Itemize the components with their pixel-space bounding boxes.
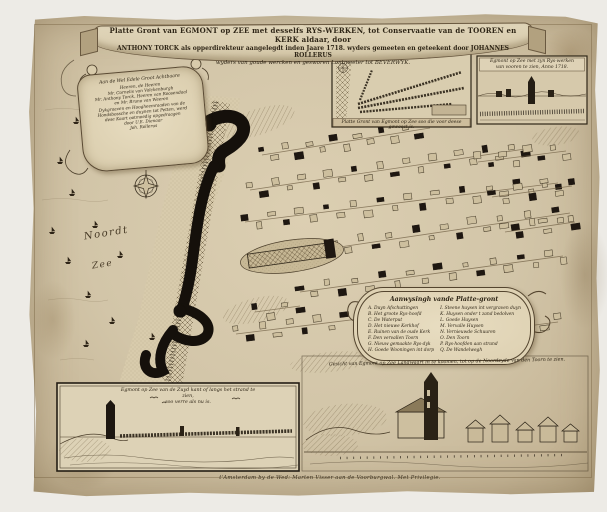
house-block xyxy=(568,215,574,222)
house-block xyxy=(499,223,509,229)
house-block xyxy=(323,169,333,177)
house-block xyxy=(517,254,524,259)
house-block xyxy=(538,218,547,223)
house-block xyxy=(337,212,346,218)
legend-cartouche: Aanwysingh vande Platte-gront A. Duyn Af… xyxy=(353,287,535,365)
house-block xyxy=(568,178,575,185)
house-block xyxy=(297,174,306,180)
ship-icon xyxy=(69,190,75,197)
dedication-cartouche: Aan de Wel Edele Groot Achtbaare Heeren,… xyxy=(76,65,210,174)
house-block xyxy=(270,154,279,160)
house-block xyxy=(516,231,524,238)
house-block xyxy=(529,218,535,226)
house-block xyxy=(281,302,287,307)
house-block xyxy=(390,172,399,177)
ribbon-end-right xyxy=(528,26,546,54)
house-block xyxy=(412,225,420,233)
ship-icon xyxy=(83,341,89,348)
house-block xyxy=(390,136,399,144)
house-block xyxy=(294,152,304,160)
house-block xyxy=(406,270,414,275)
house-block xyxy=(372,244,380,249)
house-block xyxy=(258,147,264,152)
house-block xyxy=(476,270,485,276)
house-block xyxy=(560,257,567,265)
house-block xyxy=(508,144,515,150)
title-line-1: Platte Gront van EGMONT op ZEE met desse… xyxy=(98,27,528,45)
house-block xyxy=(344,247,352,254)
house-block xyxy=(377,197,384,202)
house-block xyxy=(363,210,373,218)
house-block xyxy=(273,332,282,337)
house-block xyxy=(306,141,314,146)
house-block xyxy=(329,134,338,141)
house-block xyxy=(513,160,520,167)
ribbon-end-left xyxy=(80,28,98,56)
house-block xyxy=(414,133,424,139)
house-block xyxy=(553,313,561,320)
house-block xyxy=(302,328,308,335)
house-block xyxy=(256,222,262,230)
house-block xyxy=(378,271,386,278)
house-block xyxy=(353,133,363,138)
house-block xyxy=(324,279,330,286)
house-block xyxy=(488,162,493,167)
ship-icon xyxy=(57,158,63,165)
house-block xyxy=(418,166,424,173)
house-block xyxy=(550,145,556,151)
house-block xyxy=(338,288,347,296)
house-block xyxy=(313,314,322,322)
house-block xyxy=(557,217,564,223)
house-block xyxy=(486,186,492,191)
house-block xyxy=(399,241,409,248)
village-houses xyxy=(466,415,579,442)
house-block xyxy=(522,145,532,153)
house-block xyxy=(555,184,562,190)
house-block xyxy=(571,223,581,230)
title-line-2: ANTHONY TORCK als opperdirekteur aangele… xyxy=(98,45,528,60)
legend-right-column: I. Steene huysen int vergraven duyn K. H… xyxy=(440,306,521,355)
house-block xyxy=(456,232,463,239)
house-block xyxy=(241,214,249,221)
house-block xyxy=(311,291,319,297)
house-block xyxy=(490,258,497,265)
house-block xyxy=(385,232,392,238)
house-block xyxy=(259,321,266,329)
legend-title: Aanwysingh vande Platte-gront xyxy=(368,296,520,304)
ship-icon xyxy=(85,292,91,299)
house-block xyxy=(295,286,304,291)
front-view-caption: Egmont op Zee met zyn Rys-werken van voo… xyxy=(480,59,584,70)
house-block xyxy=(463,262,468,267)
house-block xyxy=(286,319,294,325)
house-block xyxy=(449,273,457,281)
house-block xyxy=(503,265,513,273)
house-block xyxy=(313,183,320,190)
ship-icon xyxy=(49,228,55,235)
house-block xyxy=(233,326,239,332)
house-block xyxy=(513,183,523,190)
house-block xyxy=(364,174,373,181)
house-block xyxy=(282,142,289,149)
south-view-caption: Egmont op Zee van de Zuyd kant of langs … xyxy=(118,388,258,406)
house-block xyxy=(497,215,503,221)
house-block xyxy=(446,198,454,204)
house-block xyxy=(469,158,477,165)
house-block xyxy=(428,153,437,161)
house-block xyxy=(266,313,275,321)
house-block xyxy=(555,190,564,196)
house-block xyxy=(533,262,539,268)
house-block xyxy=(542,183,547,188)
house-block xyxy=(272,177,280,185)
house-block xyxy=(483,227,491,232)
scanned-historic-map: Platte Gront van EGMONT op ZEE met desse… xyxy=(0,0,607,512)
house-block xyxy=(283,219,290,225)
house-block xyxy=(562,154,571,161)
house-block xyxy=(538,156,545,161)
house-block xyxy=(433,263,443,270)
house-block xyxy=(430,190,439,195)
house-block xyxy=(246,334,255,341)
house-block xyxy=(352,278,358,283)
house-block xyxy=(338,177,346,182)
house-block xyxy=(552,207,560,213)
publisher-imprint: t'Amsterdam by de Wed: Marten Visser aan… xyxy=(190,475,470,482)
house-block xyxy=(422,278,429,284)
ship-icon xyxy=(65,258,71,265)
house-block xyxy=(246,182,253,188)
house-block xyxy=(358,233,364,241)
house-block xyxy=(402,158,410,164)
house-block xyxy=(429,235,435,240)
house-block xyxy=(350,200,357,207)
house-block xyxy=(524,211,531,219)
ship-icon xyxy=(92,222,98,229)
house-block xyxy=(543,229,551,234)
house-block xyxy=(529,193,537,201)
house-block xyxy=(544,250,553,257)
house-block xyxy=(329,325,335,330)
house-block xyxy=(377,161,384,169)
house-block xyxy=(503,198,510,204)
house-block xyxy=(440,224,449,230)
house-block xyxy=(454,149,464,155)
house-block xyxy=(467,216,477,224)
house-block xyxy=(473,196,482,204)
title-line-3: wyders van goude wercken en gesworen Lan… xyxy=(98,60,528,67)
house-block xyxy=(392,205,398,211)
legend-left-column: A. Duyn Afschuttingen B. Het groote Rys-… xyxy=(368,306,434,355)
house-block xyxy=(259,190,269,197)
house-block xyxy=(367,138,375,144)
map-title: Platte Gront van EGMONT op ZEE met desse… xyxy=(98,27,528,66)
house-block xyxy=(296,307,306,313)
house-block xyxy=(473,151,481,159)
house-block xyxy=(487,190,495,195)
house-block xyxy=(459,186,465,193)
house-block xyxy=(444,164,451,169)
house-block xyxy=(403,193,412,200)
ship-icon xyxy=(73,118,79,125)
house-block xyxy=(267,211,275,216)
house-block xyxy=(323,204,328,209)
house-block xyxy=(251,303,257,310)
ship-icon xyxy=(109,318,115,325)
house-block xyxy=(320,147,326,153)
house-block xyxy=(310,214,318,222)
house-block xyxy=(343,144,350,152)
house-block xyxy=(351,166,357,172)
old-plan-caption: Platte Gront van Egmont op Zee soo die v… xyxy=(335,120,468,131)
house-block xyxy=(419,203,426,211)
compass-rose xyxy=(134,170,158,198)
church-ruin xyxy=(238,233,345,279)
house-block xyxy=(482,145,488,153)
ship-icon xyxy=(117,252,123,259)
house-block xyxy=(287,185,293,190)
house-block xyxy=(294,207,304,214)
house-block xyxy=(498,151,507,157)
